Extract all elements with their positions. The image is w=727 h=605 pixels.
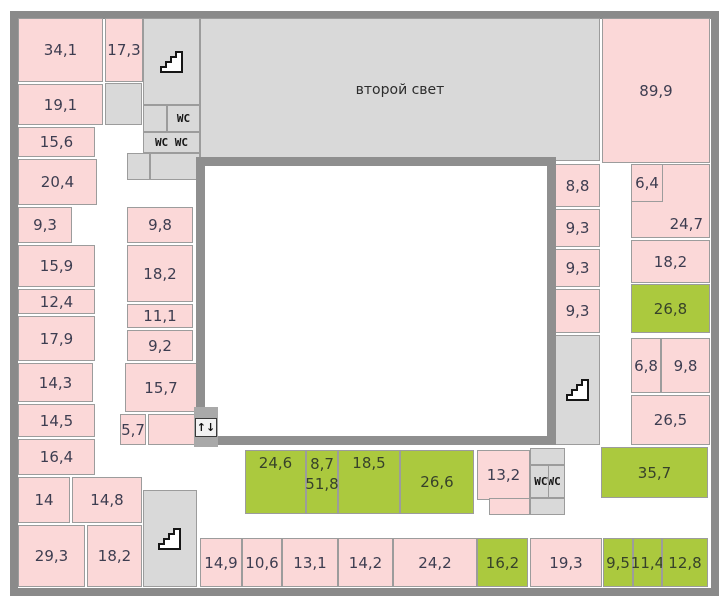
room-9-3-left: 9,3 xyxy=(18,207,72,243)
wc-ante-top xyxy=(143,105,167,132)
room-area-label: 15,7 xyxy=(144,379,177,397)
room-area-label: 8,8 xyxy=(566,177,590,195)
wc-br-ante-bottom xyxy=(530,498,565,515)
gray-cell-b xyxy=(150,153,200,180)
gray-cell-c xyxy=(105,83,142,125)
room-area-label: 14,3 xyxy=(39,374,72,392)
elevator: ↑↓ xyxy=(194,407,218,447)
room-15-7: 15,7 xyxy=(125,363,197,412)
wc-br-ante-top xyxy=(530,448,565,465)
room-area-label: 18,2 xyxy=(654,253,687,271)
room-area-label: 14,2 xyxy=(349,554,382,572)
room-area-label: 51,8 xyxy=(305,474,338,494)
room-18-5: 18,5 xyxy=(338,450,400,514)
room-14-3: 14,3 xyxy=(18,363,93,402)
room-area-label: 11,1 xyxy=(143,307,176,325)
room-area-label: 17,9 xyxy=(40,330,73,348)
room-14-9: 14,9 xyxy=(200,538,242,587)
room-area-label: 16,2 xyxy=(486,554,519,572)
room-area-label: 34,1 xyxy=(44,41,77,59)
room-area-label: 26,8 xyxy=(654,300,687,318)
room-15-6: 15,6 xyxy=(18,127,95,157)
room-area-label: 18,2 xyxy=(143,265,176,283)
stairs-icon xyxy=(565,377,591,403)
room-area-label: 13,1 xyxy=(293,554,326,572)
stairwell-right xyxy=(555,335,600,445)
room-area-label: 9,8 xyxy=(674,357,698,375)
room-area-label: 9,3 xyxy=(33,216,57,234)
room-area-label: 26,6 xyxy=(420,473,453,491)
room-area-label: 24,7 xyxy=(670,215,703,233)
room-26-6: 26,6 xyxy=(400,450,474,514)
room-area-label: 26,5 xyxy=(654,411,687,429)
room-area-label: 12,4 xyxy=(40,293,73,311)
room-area-label: 18,2 xyxy=(98,547,131,565)
room-area-label: 6,8 xyxy=(634,357,658,375)
wc-top: WC xyxy=(167,105,200,132)
elevator-box: ↑↓ xyxy=(195,418,217,437)
room-area-label: 17,3 xyxy=(107,41,140,59)
room-area-label: 89,9 xyxy=(639,82,672,100)
room-12-8: 12,8 xyxy=(662,538,708,587)
room-area-label: 14 xyxy=(34,491,53,509)
room-9-8-r: 9,8 xyxy=(661,338,710,393)
room-17-3: 17,3 xyxy=(105,18,143,82)
room-17-9: 17,9 xyxy=(18,316,95,361)
atrium-void xyxy=(196,157,556,445)
gray-cell-a xyxy=(127,153,150,180)
room-area-label: 19,3 xyxy=(549,554,582,572)
room-26-5: 26,5 xyxy=(631,395,710,445)
room-24-2: 24,2 xyxy=(393,538,477,587)
room-area-label: 16,4 xyxy=(40,448,73,466)
room-area-label: 14,8 xyxy=(90,491,123,509)
room-89-9: 89,9 xyxy=(602,18,710,163)
room-area-label: 9,3 xyxy=(566,302,590,320)
room-area-label: 9,3 xyxy=(566,219,590,237)
room-19-3: 19,3 xyxy=(530,538,602,587)
room-area-label: 12,8 xyxy=(668,554,701,572)
room-18-2-bl: 18,2 xyxy=(87,525,142,587)
stairs-icon xyxy=(159,49,185,75)
room-area-label: 9,5 xyxy=(606,554,630,572)
room-area-label: WC xyxy=(177,112,190,125)
room-18-2-mid: 18,2 xyxy=(127,245,193,302)
room-16-4: 16,4 xyxy=(18,439,95,475)
room-15-9: 15,9 xyxy=(18,245,95,287)
room-area-label: 24,6 xyxy=(259,454,292,472)
room-14-2: 14,2 xyxy=(338,538,393,587)
room-area-label: 18,5 xyxy=(352,454,385,472)
room-area-label: 19,1 xyxy=(44,96,77,114)
room-16-2: 16,2 xyxy=(477,538,528,587)
room-area-label: второй свет xyxy=(356,82,445,98)
room-8-8: 8,8 xyxy=(555,164,600,207)
room-9-2: 9,2 xyxy=(127,330,193,361)
room-area-label: 14,5 xyxy=(40,412,73,430)
room-9-3-r2: 9,3 xyxy=(555,249,600,287)
room-10-6: 10,6 xyxy=(242,538,282,587)
room-6-8: 6,8 xyxy=(631,338,661,393)
room-area-label: 6,4 xyxy=(635,174,659,192)
room-24-6: 24,6 xyxy=(245,450,306,514)
room-area-label: 15,9 xyxy=(40,257,73,275)
room-area-label: WC WC xyxy=(155,136,188,149)
stairwell-top xyxy=(143,18,200,105)
room-area-label: 20,4 xyxy=(41,173,74,191)
room-8-7-51-8: 8,751,8 xyxy=(306,450,338,514)
room-11-1: 11,1 xyxy=(127,304,193,328)
room-area-label: 15,6 xyxy=(40,133,73,151)
room-29-3: 29,3 xyxy=(18,525,85,587)
room-26-8: 26,8 xyxy=(631,284,710,333)
room-area-label: 8,7 xyxy=(310,454,334,474)
second-light: второй свет xyxy=(200,18,600,161)
room-area-label: 14,9 xyxy=(204,554,237,572)
room-area-label: 9,3 xyxy=(566,259,590,277)
wc-br: WCWC xyxy=(530,465,565,498)
room-19-1: 19,1 xyxy=(18,84,103,125)
room-area-label: 10,6 xyxy=(245,554,278,572)
stairs-icon xyxy=(157,526,183,552)
room-area-label: 24,2 xyxy=(418,554,451,572)
room-11-4: 11,4 xyxy=(633,538,662,587)
room-35-7: 35,7 xyxy=(601,447,708,498)
room-9-5: 9,5 xyxy=(603,538,633,587)
floorplan-canvas: второй свет WCWC WC WCWC34,117,319,115,6… xyxy=(0,0,727,605)
room-9-3-r1: 9,3 xyxy=(555,209,600,247)
room-12-4: 12,4 xyxy=(18,289,95,314)
room-area-label: 13,2 xyxy=(487,466,520,484)
stairwell-bottom xyxy=(143,490,197,587)
elevator-icon: ↑↓ xyxy=(197,421,215,434)
room-area-label: 9,8 xyxy=(148,216,172,234)
room-area-label: 9,2 xyxy=(148,337,172,355)
room-13-1: 13,1 xyxy=(282,538,338,587)
room-9-3-r3: 9,3 xyxy=(555,289,600,333)
room-13-2: 13,2 xyxy=(477,450,530,500)
room-13-2-ext xyxy=(489,498,530,515)
room-area-label: 11,4 xyxy=(631,554,664,572)
room-5-7: 5,7 xyxy=(120,414,146,445)
room-area-label: 5,7 xyxy=(121,421,145,439)
wc-double-top: WC WC xyxy=(143,132,200,153)
room-18-2-r: 18,2 xyxy=(631,240,710,283)
room-6-4: 6,4 xyxy=(631,164,663,202)
room-14-8: 14,8 xyxy=(72,477,142,523)
room-area-label: 35,7 xyxy=(638,464,671,482)
room-area-label: 29,3 xyxy=(35,547,68,565)
room-34-1: 34,1 xyxy=(18,18,103,82)
room-14-5: 14,5 xyxy=(18,404,95,437)
room-9-8-mid: 9,8 xyxy=(127,207,193,243)
room-unlabeled xyxy=(148,414,196,445)
room-20-4: 20,4 xyxy=(18,159,97,205)
wc-divider xyxy=(548,466,549,497)
room-14: 14 xyxy=(18,477,70,523)
